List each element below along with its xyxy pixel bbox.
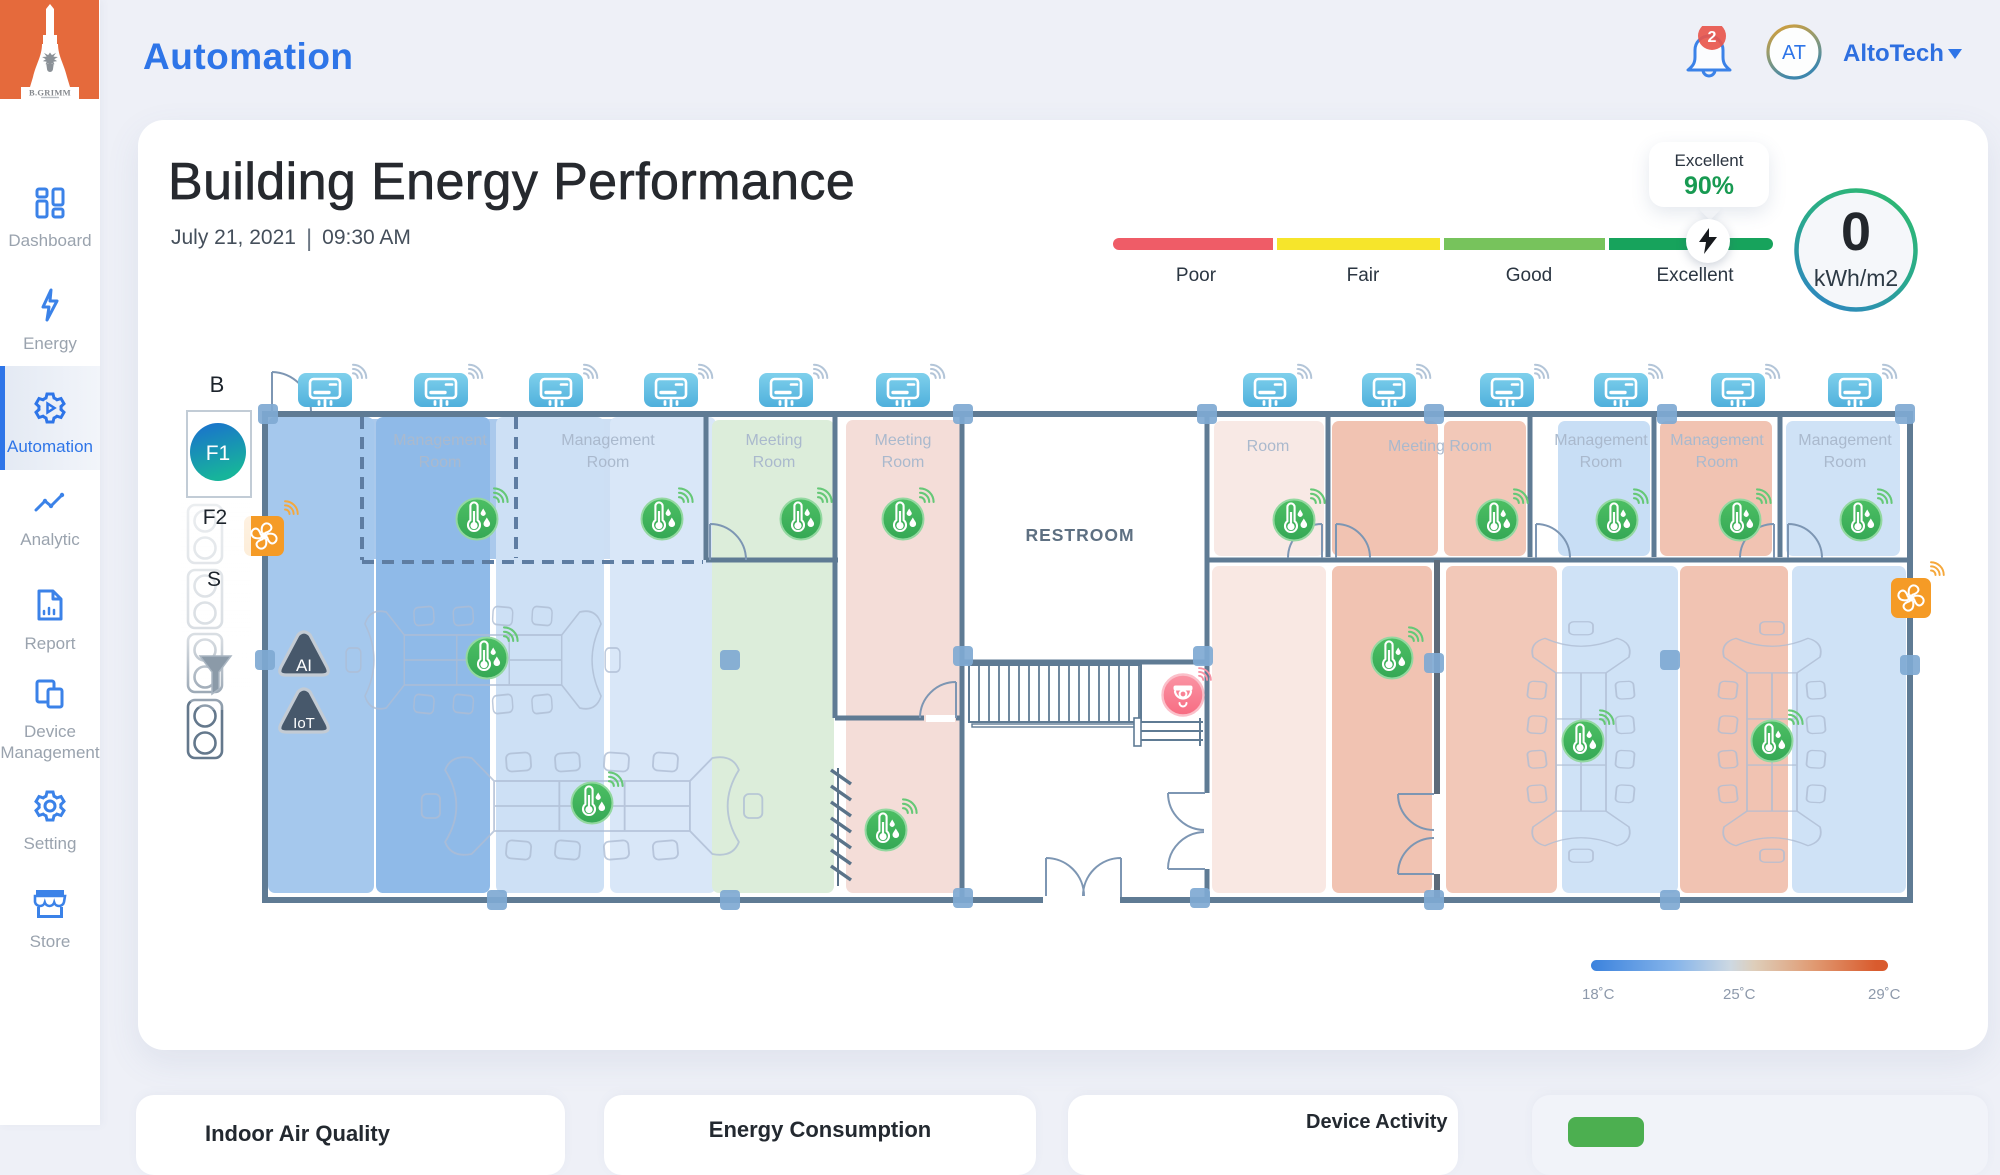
svg-text:Room: Room	[587, 454, 630, 471]
svg-text:Management: Management	[1670, 432, 1764, 449]
svg-text:Meeting: Meeting	[875, 432, 932, 449]
svg-text:AI: AI	[296, 656, 312, 675]
svg-text:Room: Room	[882, 454, 925, 471]
svg-text:F2: F2	[203, 506, 228, 529]
svg-text:Room: Room	[1696, 454, 1739, 471]
svg-text:Room: Room	[1247, 438, 1290, 455]
svg-text:Management: Management	[1554, 432, 1648, 449]
svg-text:Management: Management	[1798, 432, 1892, 449]
svg-text:Room: Room	[419, 454, 462, 471]
svg-text:Room: Room	[1824, 454, 1867, 471]
svg-text:Management: Management	[561, 432, 655, 449]
svg-text:F1: F1	[206, 442, 231, 465]
svg-text:S: S	[207, 568, 221, 591]
svg-text:Management: Management	[393, 432, 487, 449]
svg-text:Room: Room	[753, 454, 796, 471]
svg-text:Meeting: Meeting	[746, 432, 803, 449]
svg-text:Meeting Room: Meeting Room	[1388, 438, 1492, 455]
svg-text:B: B	[210, 372, 225, 397]
svg-text:IoT: IoT	[293, 715, 315, 732]
svg-text:Room: Room	[1580, 454, 1623, 471]
svg-text:RESTROOM: RESTROOM	[1025, 525, 1134, 545]
